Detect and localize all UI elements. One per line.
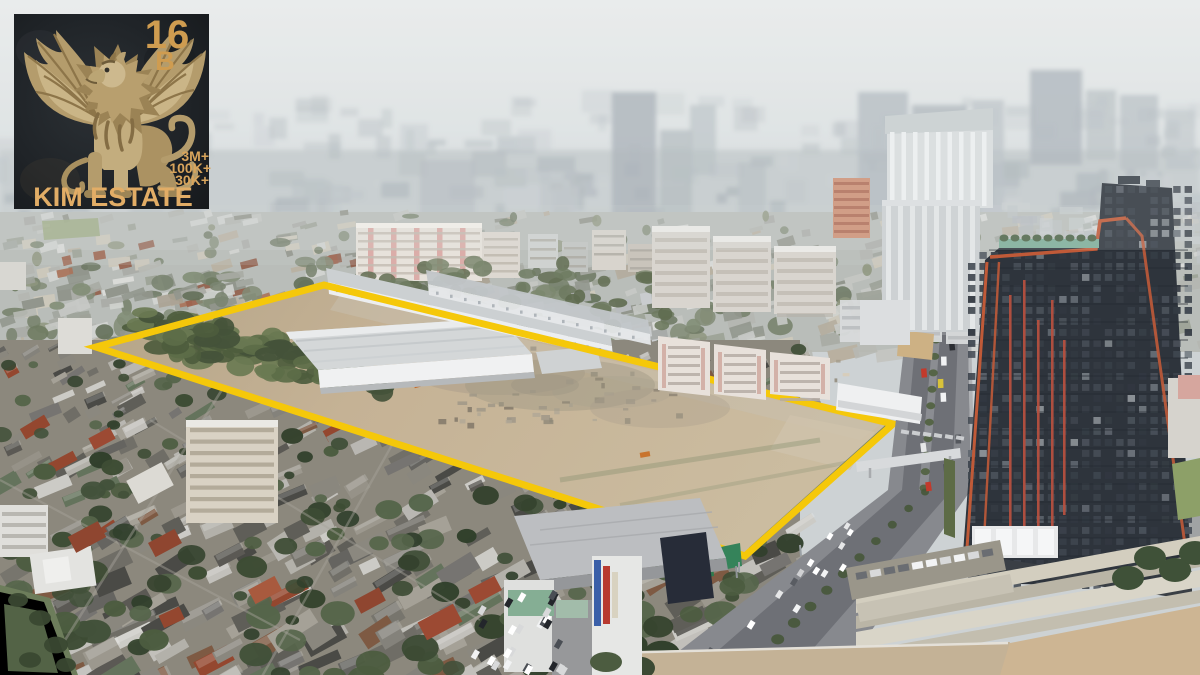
svg-text:KIM ESTATE: KIM ESTATE <box>33 182 193 212</box>
svg-text:B: B <box>155 46 175 76</box>
